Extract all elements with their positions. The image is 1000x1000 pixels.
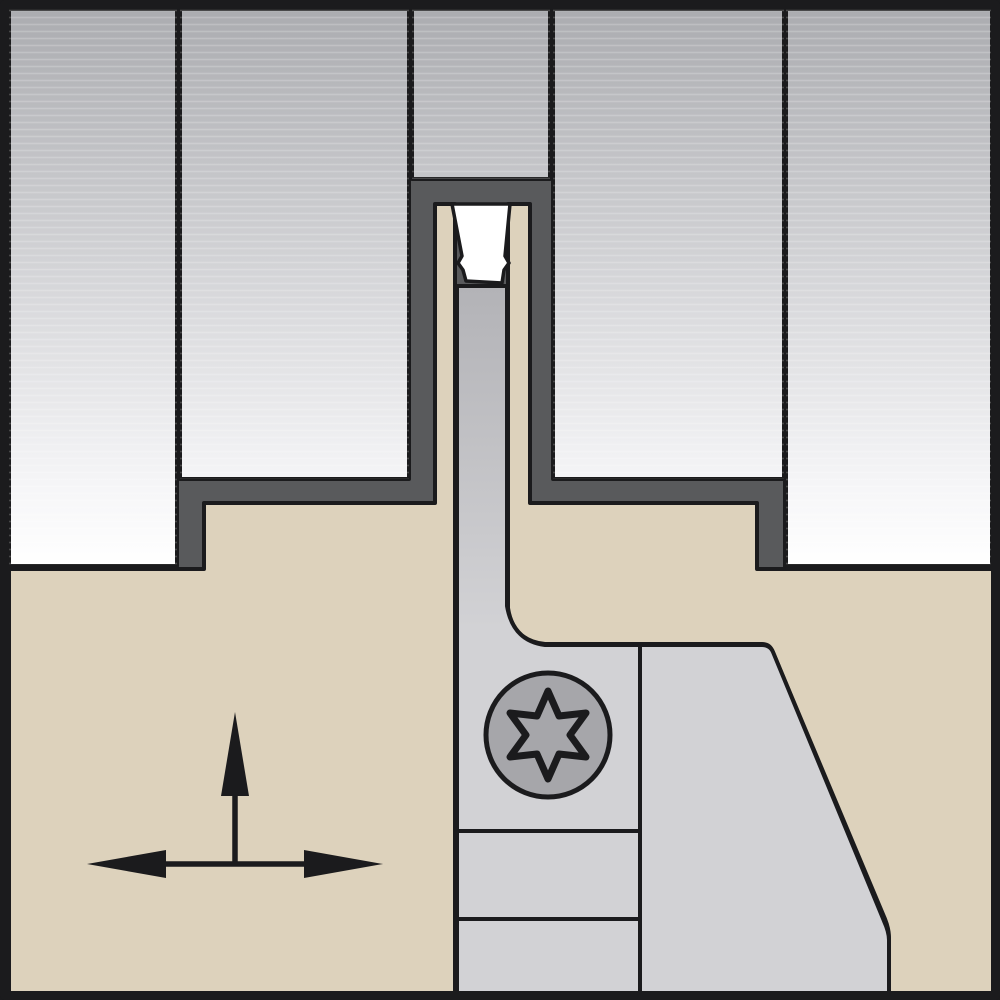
texture-panel-5 <box>786 9 992 566</box>
tool-cross-section-diagram <box>0 0 1000 1000</box>
texture-panel-1 <box>9 9 177 566</box>
blade-column-shading <box>459 288 505 624</box>
torx-clamp-screw <box>486 673 610 797</box>
texture-panel-2 <box>180 9 409 479</box>
texture-panel-3 <box>412 9 550 179</box>
cavity-right-step <box>757 477 783 568</box>
diagram-stage <box>0 0 1000 1000</box>
texture-panel-4 <box>553 9 784 479</box>
cavity-left-step <box>177 477 203 568</box>
